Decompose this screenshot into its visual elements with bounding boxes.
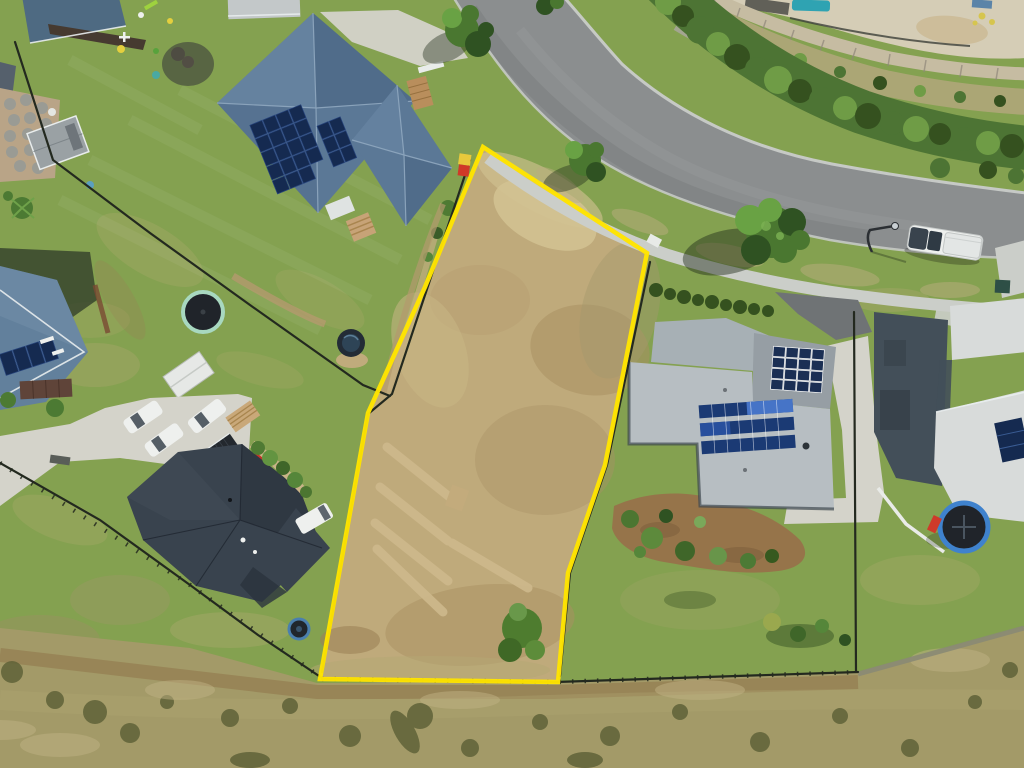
aerial-photo-canvas [0,0,1024,768]
bin [995,280,1011,294]
shade-patch [162,42,214,86]
mint-trampoline [183,292,223,332]
paver-patio [20,379,73,400]
solar-array-rows [699,399,796,454]
satellite-dish [803,443,810,450]
blue-shade-sail [972,0,993,9]
swimming-pool [792,0,830,12]
house-e-roof-upper [950,298,1024,360]
shrub [46,399,64,417]
aerial-photo-vacant-lot [0,0,1024,768]
splash-pool [289,619,309,639]
blue-trampoline [940,503,988,551]
shrub [0,392,16,408]
outdoor-table [48,108,56,116]
